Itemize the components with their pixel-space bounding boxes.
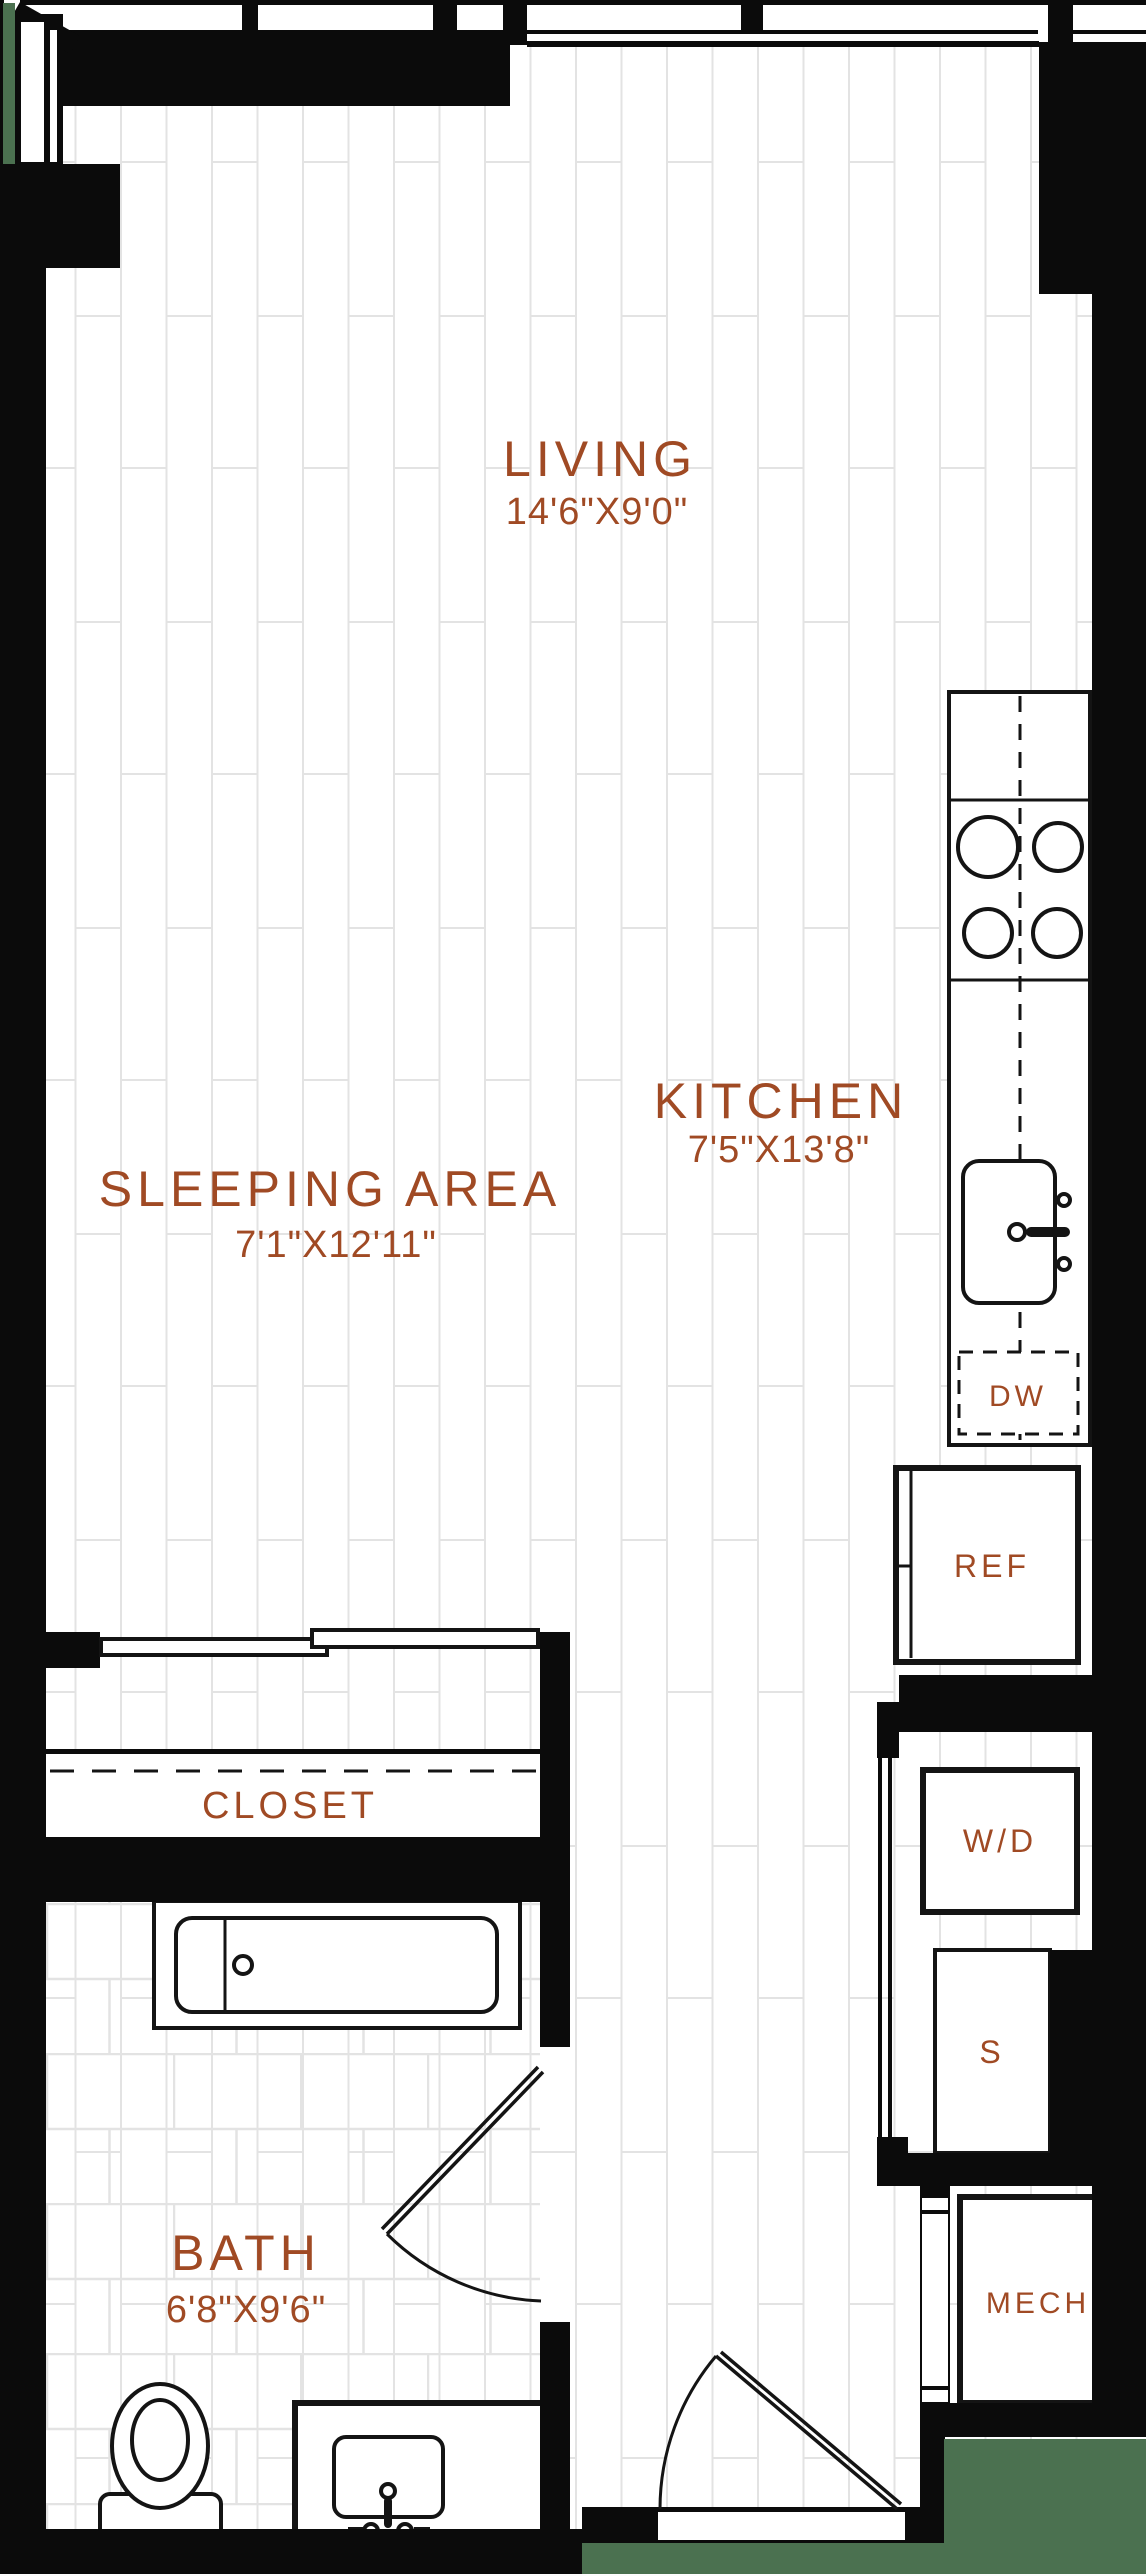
kitchen-sink <box>963 1161 1070 1303</box>
window-mullion <box>242 5 258 31</box>
green-corner-bottom-right <box>944 2439 1146 2574</box>
dishwasher: DW <box>959 1352 1078 1434</box>
bath-name: BATH <box>171 2225 321 2281</box>
closet-back-line <box>46 1749 540 1754</box>
living-name: LIVING <box>503 431 697 487</box>
floor-plan: DW REF W/D S MECH <box>0 0 1146 2574</box>
refrigerator: REF <box>896 1468 1078 1662</box>
room-label-living: LIVING 14'6"X9'0" <box>503 431 697 533</box>
shelves: S <box>935 1950 1050 2153</box>
window-mullion <box>1048 5 1073 47</box>
dishwasher-label: DW <box>989 1380 1047 1413</box>
green-edge-top-left <box>3 3 15 168</box>
bathtub <box>154 1901 520 2028</box>
sleeping-dims: 7'1"X12'11" <box>235 1224 437 1266</box>
kitchen-counter <box>949 692 1090 1445</box>
shelves-label: S <box>979 2034 1004 2070</box>
sleeping-name: SLEEPING AREA <box>99 1161 561 1217</box>
window-mullion <box>433 5 457 31</box>
entry-threshold <box>658 2512 905 2540</box>
washer-dryer: W/D <box>923 1770 1077 1912</box>
living-dims: 14'6"X9'0" <box>506 491 689 533</box>
kitchen-name: KITCHEN <box>654 1073 908 1129</box>
bath-dims: 6'8"X9'6" <box>166 2289 326 2331</box>
room-label-closet: CLOSET <box>202 1785 378 1827</box>
green-strip-bottom <box>582 2543 944 2574</box>
kitchen-dims: 7'5"X13'8" <box>688 1129 871 1171</box>
floor-plan-page: DW REF W/D S MECH <box>0 0 1146 2574</box>
washer-dryer-label: W/D <box>963 1823 1037 1859</box>
window-mullion <box>741 5 763 31</box>
room-label-bath: BATH 6'8"X9'6" <box>166 2225 326 2331</box>
refrigerator-label: REF <box>954 1548 1030 1584</box>
closet-name: CLOSET <box>202 1785 378 1827</box>
bath-faucet <box>381 2484 395 2498</box>
mech-label: MECH <box>986 2287 1090 2320</box>
room-label-kitchen: KITCHEN 7'5"X13'8" <box>654 1073 908 1171</box>
